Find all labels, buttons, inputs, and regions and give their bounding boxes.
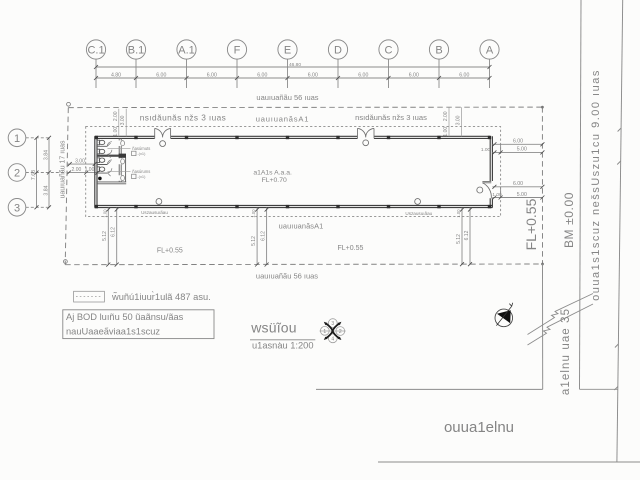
svg-text:6.12: 6.12 xyxy=(260,231,266,241)
svg-text:nauUaaea̋viaa1s1scuz: nauUaaea̋viaa1s1scuz xyxy=(66,326,160,336)
svg-text:2.00: 2.00 xyxy=(72,167,82,173)
svg-text:6.00: 6.00 xyxy=(513,139,523,145)
svg-text:6.00: 6.00 xyxy=(358,73,368,79)
svg-text:3.84: 3.84 xyxy=(43,150,49,160)
svg-text:2.00: 2.00 xyxy=(113,111,119,121)
svg-text:3.00: 3.00 xyxy=(456,115,462,125)
svg-text:6.00: 6.00 xyxy=(257,73,267,79)
svg-text:2.00: 2.00 xyxy=(443,111,449,121)
svg-text:6.12: 6.12 xyxy=(111,227,117,237)
svg-text:6.00: 6.00 xyxy=(207,73,217,79)
svg-text:6.00: 6.00 xyxy=(459,73,469,79)
svg-text:4: 4 xyxy=(331,336,334,342)
svg-text:ñasúrums: ñasúrums xyxy=(132,169,150,174)
svg-text:uauıuañãu 56 ıuas: uauıuañãu 56 ıuas xyxy=(256,93,318,102)
svg-text:A: A xyxy=(486,45,494,57)
svg-text:46.80: 46.80 xyxy=(289,62,301,68)
svg-text:5.12: 5.12 xyxy=(456,234,462,244)
svg-text:1.00: 1.00 xyxy=(456,209,461,218)
svg-text:1.00: 1.00 xyxy=(251,209,256,218)
svg-text:1: 1 xyxy=(14,133,20,145)
svg-text:FL+0.55: FL+0.55 xyxy=(157,248,183,255)
svg-text:ouua1elnu: ouua1elnu xyxy=(444,419,514,436)
svg-text:FL+0.55: FL+0.55 xyxy=(338,245,364,252)
svg-text:B: B xyxy=(435,45,442,57)
svg-text:6.00: 6.00 xyxy=(308,73,318,79)
svg-text:3.00: 3.00 xyxy=(120,115,126,125)
svg-text:uauıuañãu 17 ıuas: uauıuañãu 17 ıuas xyxy=(60,140,67,198)
svg-text:1.00: 1.00 xyxy=(113,127,119,137)
svg-text:7.68: 7.68 xyxy=(31,170,37,180)
svg-text:B.1: B.1 xyxy=(128,45,145,57)
svg-text:A.1: A.1 xyxy=(178,45,195,57)
svg-text:uauıuanăsA1: uauıuanăsA1 xyxy=(256,115,310,124)
svg-text:nsıdăunăs nžs 3 ıuas: nsıdăunăs nžs 3 ıuas xyxy=(140,113,226,123)
svg-text:3.00: 3.00 xyxy=(75,158,85,164)
svg-text:nsıdăunăs nžs 3 ıuas: nsıdăunăs nžs 3 ıuas xyxy=(355,113,427,122)
svg-text:ñasúrnuts: ñasúrnuts xyxy=(132,146,150,151)
svg-text:C.1: C.1 xyxy=(87,45,104,57)
svg-text:5.00: 5.00 xyxy=(517,147,527,153)
svg-text:1.00: 1.00 xyxy=(102,209,107,218)
svg-text:-(x1): -(x1) xyxy=(137,151,146,156)
svg-text:5.00: 5.00 xyxy=(517,192,527,198)
svg-text:uauıuanăsA1: uauıuanăsA1 xyxy=(279,222,324,231)
svg-text:3: 3 xyxy=(14,202,20,214)
svg-text:3: 3 xyxy=(331,321,334,327)
svg-text:C: C xyxy=(385,45,393,57)
svg-text:4.80: 4.80 xyxy=(111,73,121,79)
svg-text:1.00: 1.00 xyxy=(443,127,449,137)
svg-text:Uszausuıãau: Uszausuıãau xyxy=(405,211,432,216)
svg-text:5.12: 5.12 xyxy=(102,231,108,241)
svg-text:6.00: 6.00 xyxy=(156,73,166,79)
svg-text:D: D xyxy=(334,45,342,57)
svg-text:6.00: 6.00 xyxy=(409,73,419,79)
svg-text:Uszausuıãau: Uszausuıãau xyxy=(141,210,168,215)
svg-text:a1A1s A.a.a.: a1A1s A.a.a. xyxy=(253,169,292,176)
svg-text:w̃uñú1iuur̀1ulã 487 asu.: w̃uñú1iuur̀1ulã 487 asu. xyxy=(111,291,211,302)
svg-text:1.00: 1.00 xyxy=(492,192,502,198)
svg-text:2: 2 xyxy=(14,168,20,180)
svg-text:5.12: 5.12 xyxy=(251,236,257,246)
svg-text:uauıuañãu 56 ıuas: uauıuañãu 56 ıuas xyxy=(256,272,318,281)
svg-text:FL+0.55: FL+0.55 xyxy=(523,198,539,250)
svg-text:BM ±0.00: BM ±0.00 xyxy=(562,192,576,248)
svg-text:1.00: 1.00 xyxy=(481,147,491,153)
svg-text:FL+0.70: FL+0.70 xyxy=(262,177,287,184)
svg-text:6.00: 6.00 xyxy=(513,181,523,187)
svg-text:3.84: 3.84 xyxy=(43,185,49,195)
svg-text:F: F xyxy=(234,45,241,57)
svg-text:ouua1s1scuz nešsUszu1cu 9.00 ı: ouua1s1scuz nešsUszu1cu 9.00 ıuas xyxy=(590,69,602,301)
svg-text:a1elnu uae 35: a1elnu uae 35 xyxy=(560,308,572,395)
svg-text:1: 1 xyxy=(323,329,326,335)
svg-text:wsüĩou: wsüĩou xyxy=(250,320,297,336)
svg-text:-(x1): -(x1) xyxy=(137,174,146,179)
svg-text:6.12: 6.12 xyxy=(464,230,470,240)
svg-text:Aj BOD luıñu 50 ũaãnsu/ãas: Aj BOD luıñu 50 ũaãnsu/ãas xyxy=(66,312,184,322)
svg-text:2: 2 xyxy=(339,329,342,335)
svg-text:E: E xyxy=(284,45,291,57)
svg-text:u1asna̍u 1:200: u1asna̍u 1:200 xyxy=(252,341,314,351)
